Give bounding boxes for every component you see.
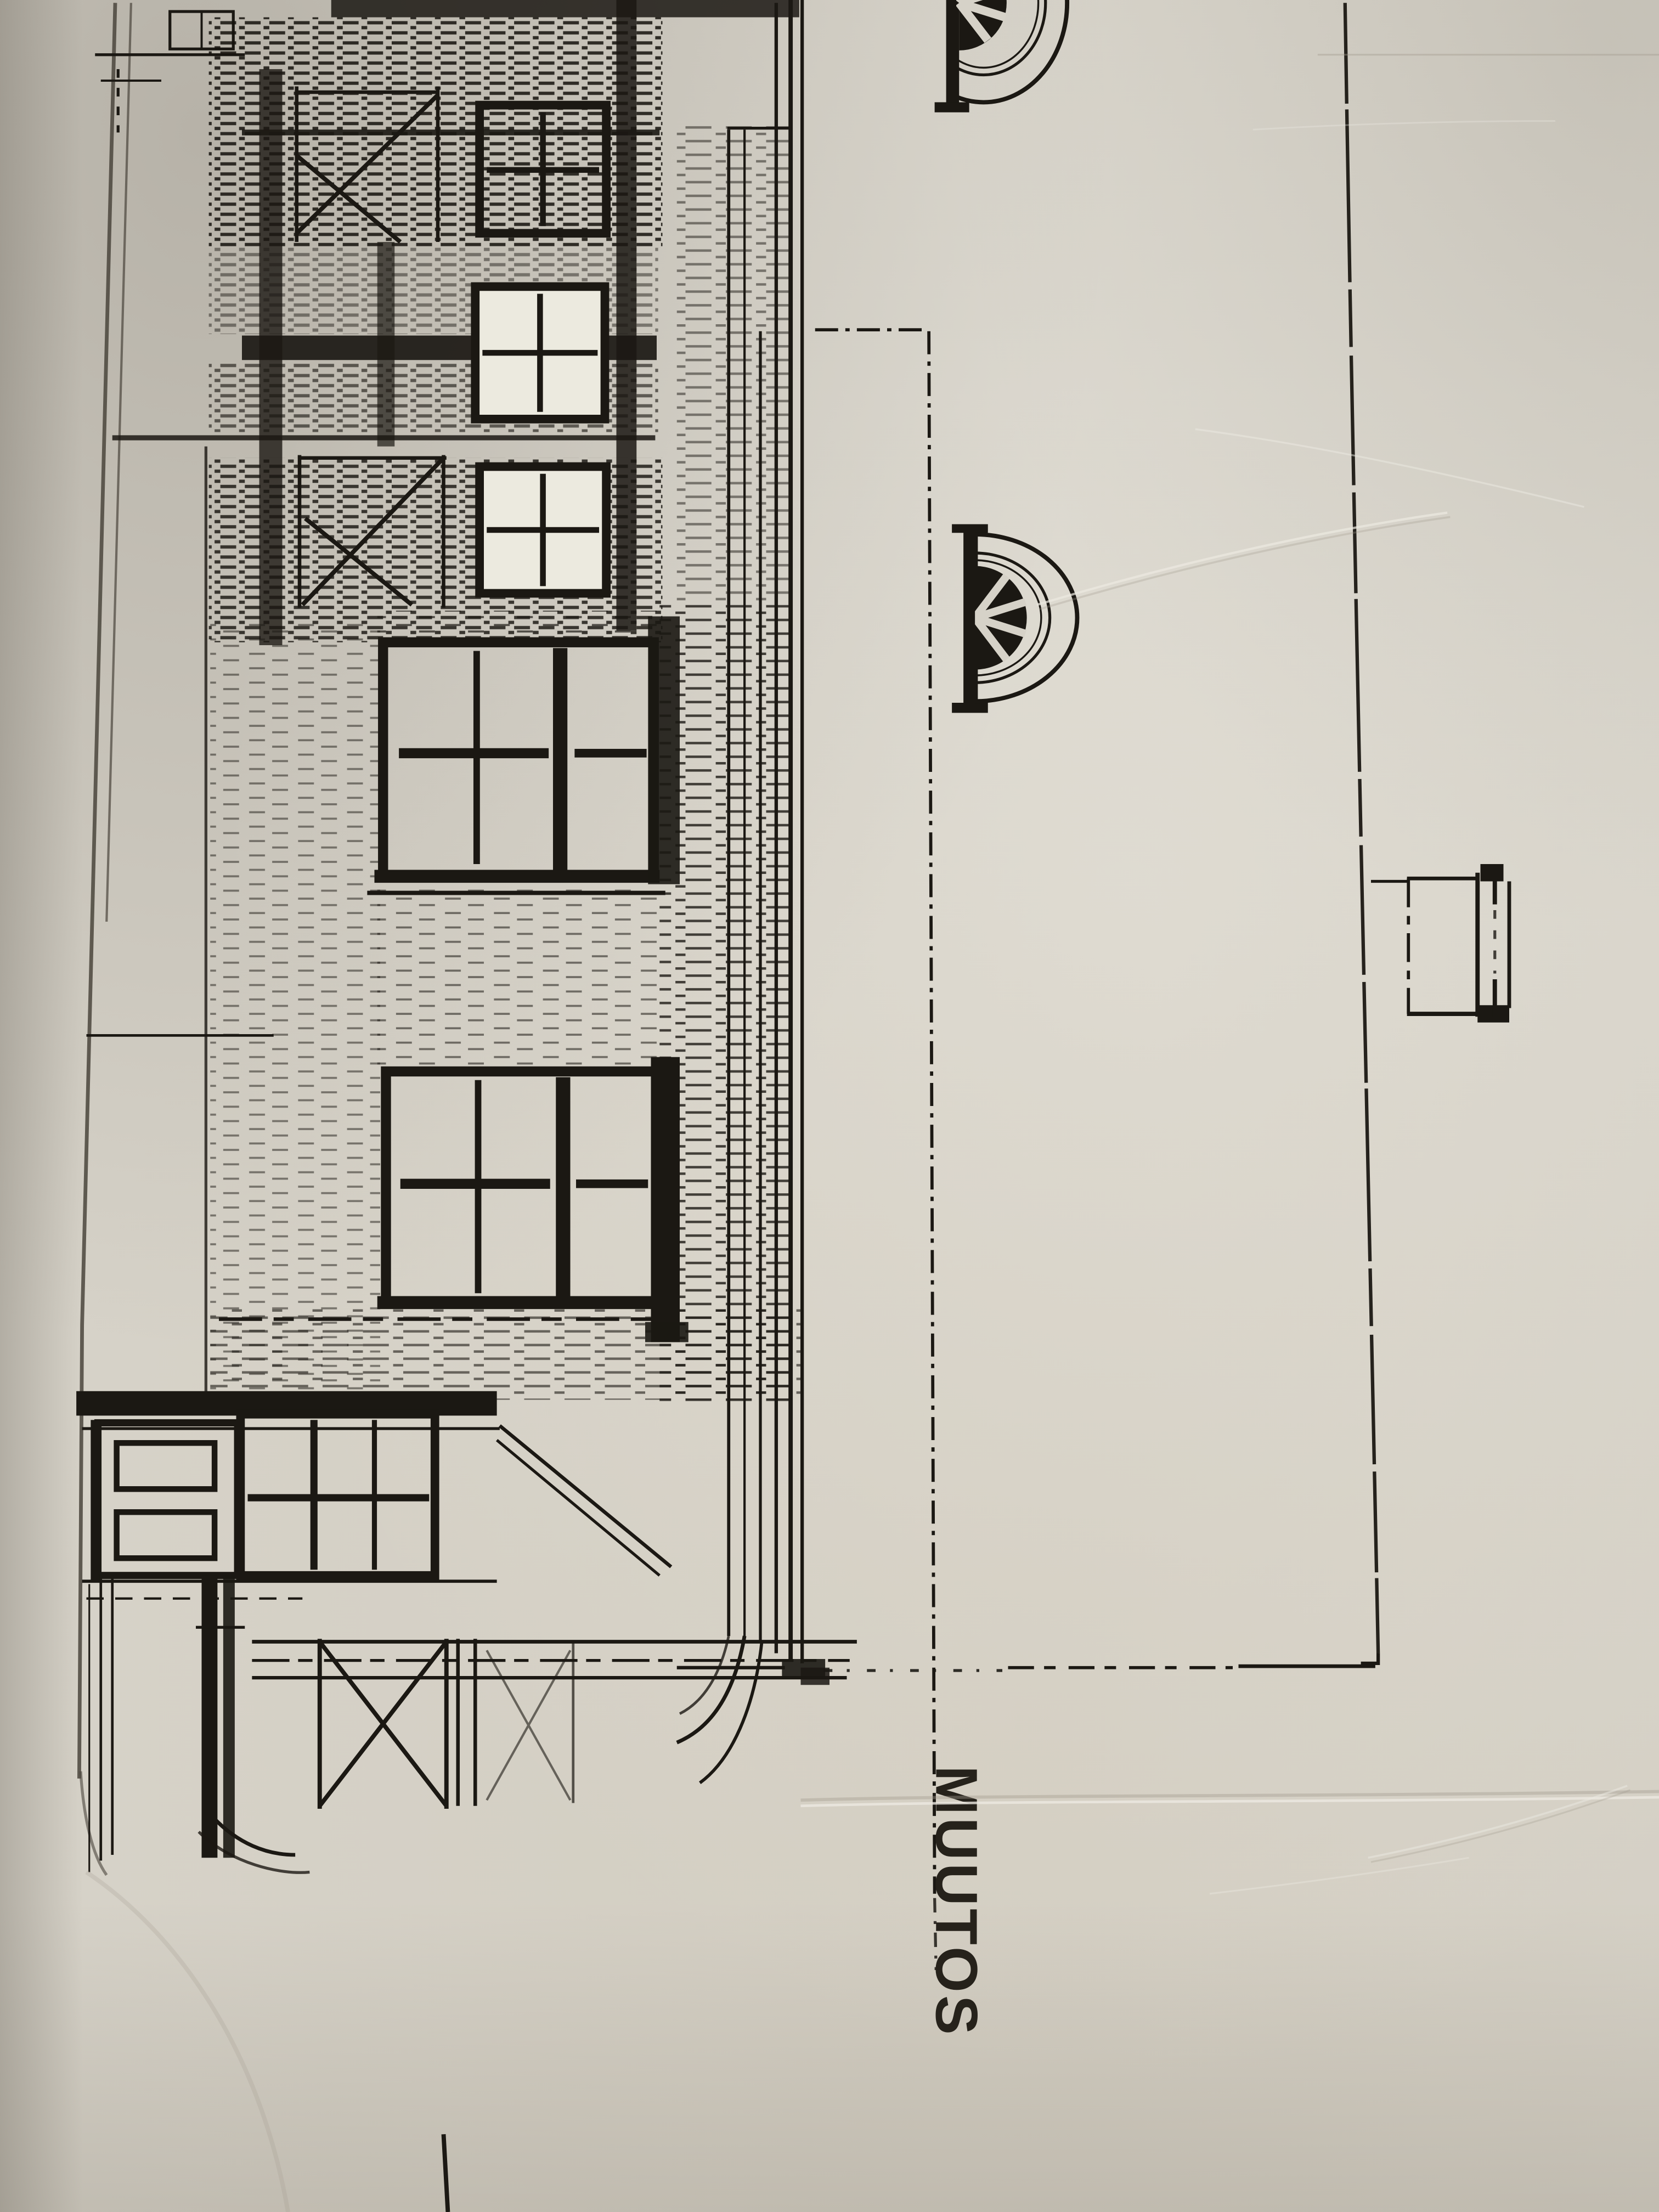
small-four-pane-window-3 bbox=[479, 467, 606, 594]
porch-post bbox=[202, 1576, 218, 1858]
corner-trim bbox=[651, 1057, 680, 1342]
drawing-label-muutos: MUUTOS bbox=[923, 1765, 989, 2038]
corner-trim bbox=[648, 617, 680, 884]
small-four-pane-window-2 bbox=[475, 286, 605, 419]
photo-of-blueprint: MUUTOS bbox=[0, 0, 1659, 2212]
blueprint-drawing: MUUTOS bbox=[0, 0, 1659, 2212]
